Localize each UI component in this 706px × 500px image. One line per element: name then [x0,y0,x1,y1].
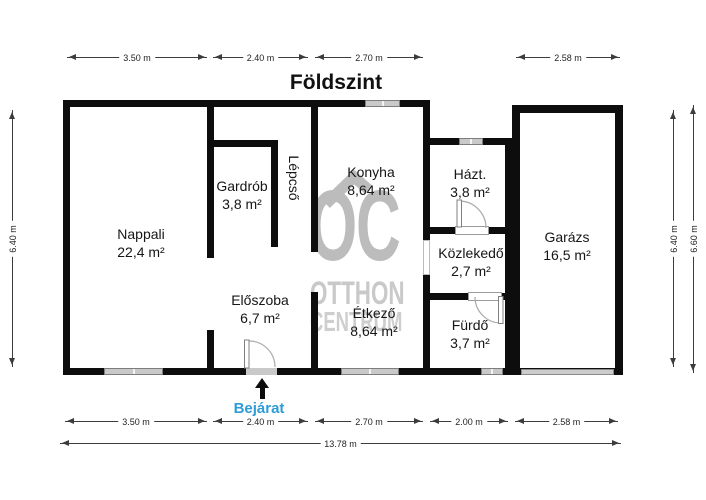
room-area: 8,64 m² [347,181,394,199]
dim-bottom-4: 2.00 m [430,421,508,422]
dim-label: 6.40 m [8,221,18,257]
dim-bottom-2: 2.40 m [213,421,308,422]
door-arc-hazt [459,201,486,228]
room-area: 8,64 m² [350,322,397,340]
door-leaf-furdo [499,297,504,324]
room-name: Étkező [350,304,397,322]
door-arc-entrance [249,341,275,367]
room-name: Gardrób [216,177,267,195]
dim-label: 2.40 m [243,417,279,427]
dim-label: 2.58 m [550,53,586,63]
dim-label: 2.40 m [243,53,279,63]
room-area: 16,5 m² [543,246,590,264]
door-leaf-hazt [457,200,462,227]
room-name: Előszoba [231,291,289,309]
dim-label: 2.58 m [549,417,585,427]
room-name: Házt. [450,165,490,183]
dim-label: 2.00 m [451,417,487,427]
room-label-konyha: Konyha 8,64 m² [347,163,394,199]
dim-right-outer-height: 6.60 m [693,105,694,373]
dim-label: 2.70 m [351,53,387,63]
room-label-hazt: Házt. 3,8 m² [450,165,490,201]
room-area: 6,7 m² [231,309,289,327]
room-label-etkezo: Étkező 8,64 m² [350,304,397,340]
room-label-eloszoba: Előszoba 6,7 m² [231,291,289,327]
room-name: Garázs [543,228,590,246]
entrance-label: Bejárat [234,400,285,417]
dim-bottom-3: 2.70 m [315,421,423,422]
room-area: 3,7 m² [450,334,490,352]
page-title: Földszint [290,71,382,95]
dim-top-4: 2.58 m [516,57,620,58]
room-area: 22,4 m² [117,243,164,261]
dim-bottom-5: 2.58 m [515,421,618,422]
dim-label: 2.70 m [351,417,387,427]
room-name: Nappali [117,225,164,243]
dim-right-inner-height: 6.40 m [673,110,674,367]
room-name: Közlekedő [438,244,503,262]
floor-plan: OC OTTHON CENTRUM Földszint Nappali 22,4 [0,0,706,500]
room-label-kozlekedo: Közlekedő 2,7 m² [438,244,503,280]
room-name: Fürdő [450,316,490,334]
door-leaf-entrance [245,340,250,368]
room-name: Lépcső [285,155,303,200]
room-area: 3,8 m² [216,195,267,213]
dim-label: 6.40 m [669,221,679,257]
dim-label: 13.78 m [320,439,361,449]
dim-top-1: 3.50 m [67,57,207,58]
room-label-garazs: Garázs 16,5 m² [543,228,590,264]
dim-bottom-1: 3.50 m [65,421,207,422]
dim-label: 3.50 m [118,417,154,427]
dim-top-2: 2.40 m [213,57,308,58]
room-area: 2,7 m² [438,262,503,280]
room-label-nappali: Nappali 22,4 m² [117,225,164,261]
dim-label: 3.50 m [119,53,155,63]
room-label-furdo: Fürdő 3,7 m² [450,316,490,352]
room-label-gardrob: Gardrób 3,8 m² [216,177,267,213]
dim-total-width: 13.78 m [60,443,621,444]
room-label-lepcso: Lépcső [285,155,303,200]
entrance-arrow-stem [260,387,265,399]
room-area: 3,8 m² [450,183,490,201]
dim-left-height: 6.40 m [12,110,13,367]
room-name: Konyha [347,163,394,181]
dim-top-3: 2.70 m [315,57,423,58]
dim-label: 6.60 m [689,221,699,257]
